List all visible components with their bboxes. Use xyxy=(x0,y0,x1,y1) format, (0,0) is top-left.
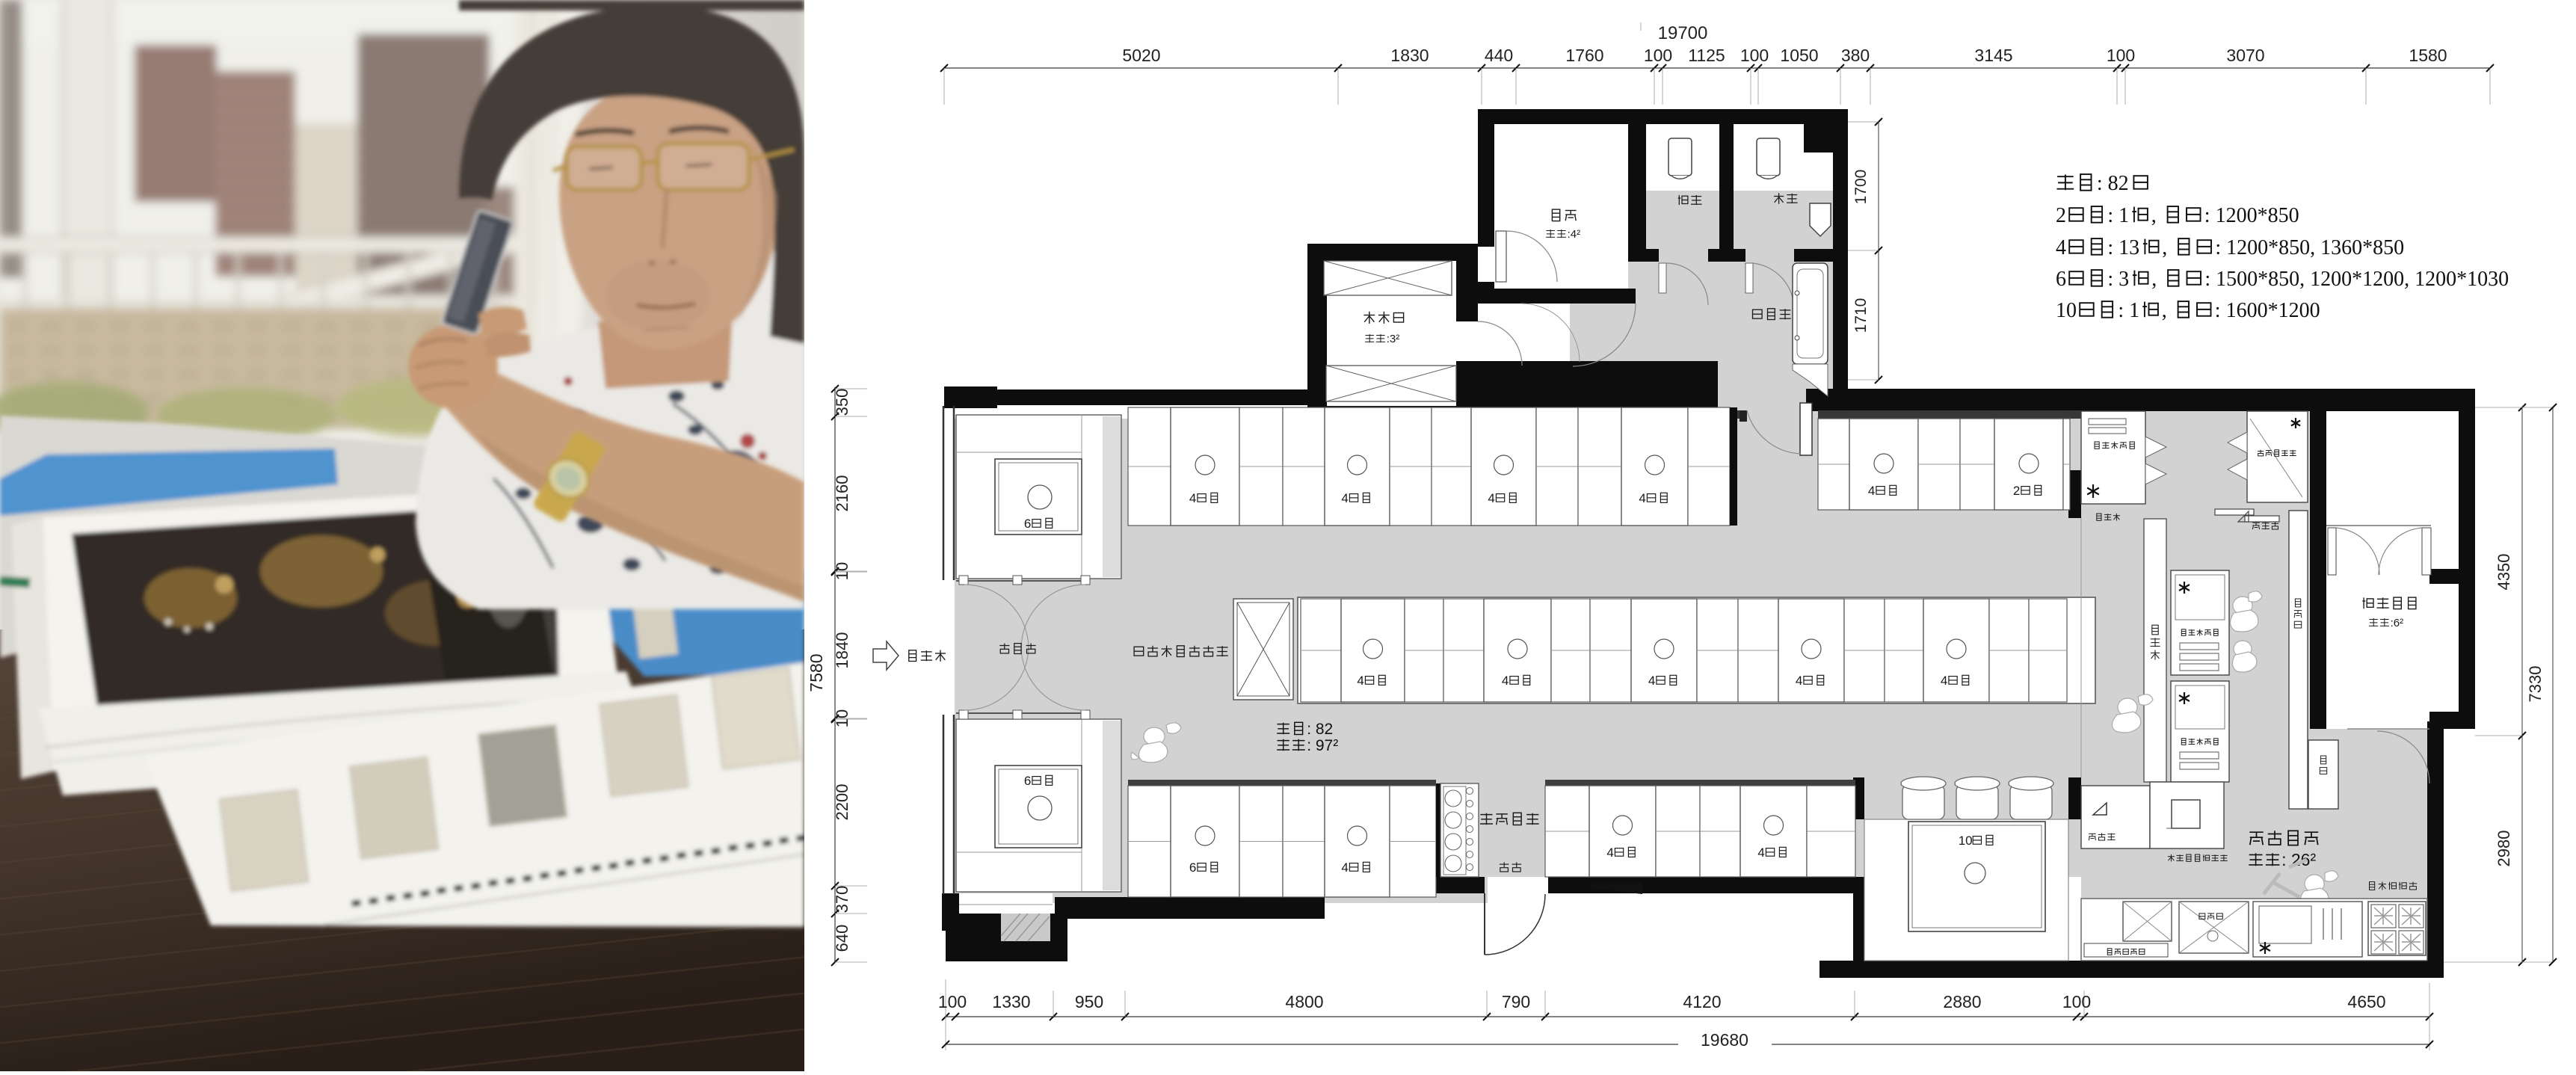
svg-text:2160: 2160 xyxy=(833,475,851,512)
svg-text:: 3: : 3 xyxy=(2107,268,2129,291)
svg-text:: 1: : 1 xyxy=(2118,299,2139,322)
svg-text:790: 790 xyxy=(1502,992,1530,1011)
svg-text:: 1: : 1 xyxy=(2107,204,2129,227)
svg-text:4: 4 xyxy=(1341,491,1348,505)
svg-text:2: 2 xyxy=(2056,204,2066,227)
svg-text:2880: 2880 xyxy=(1943,992,1981,1011)
svg-text:1830: 1830 xyxy=(1390,46,1429,65)
svg-text:4: 4 xyxy=(1796,674,1802,688)
svg-text:1580: 1580 xyxy=(2409,46,2447,65)
svg-text:7580: 7580 xyxy=(807,653,826,691)
svg-text:6: 6 xyxy=(1024,517,1031,531)
svg-text:19680: 19680 xyxy=(1701,1030,1748,1050)
svg-text:4: 4 xyxy=(2056,236,2066,259)
svg-text:350: 350 xyxy=(833,389,851,416)
svg-text::3²: :3² xyxy=(1387,333,1400,345)
svg-text:7330: 7330 xyxy=(2526,666,2545,703)
svg-text:10: 10 xyxy=(2056,299,2077,322)
svg-text:: 97²: : 97² xyxy=(1307,737,1338,754)
svg-text:4: 4 xyxy=(1941,674,1947,688)
svg-text:10: 10 xyxy=(833,562,851,580)
svg-text:6: 6 xyxy=(1189,860,1196,875)
svg-text::4²: :4² xyxy=(1568,228,1581,241)
svg-text:: 13: : 13 xyxy=(2107,236,2139,259)
svg-text:2200: 2200 xyxy=(833,784,851,821)
svg-text::6²: :6² xyxy=(2391,617,2404,629)
svg-text:4: 4 xyxy=(1639,491,1645,505)
svg-text:6: 6 xyxy=(2056,268,2066,291)
svg-text:: 82: : 82 xyxy=(1307,721,1333,738)
svg-text:,: , xyxy=(2151,268,2157,291)
svg-text:: 82: : 82 xyxy=(2097,172,2129,195)
svg-text:,: , xyxy=(2151,204,2157,227)
svg-text:380: 380 xyxy=(1841,46,1870,65)
svg-text:6: 6 xyxy=(1024,774,1031,788)
svg-text:4: 4 xyxy=(1189,491,1196,505)
svg-text:1760: 1760 xyxy=(1565,46,1603,65)
svg-text:4: 4 xyxy=(1357,674,1364,688)
svg-text:,: , xyxy=(2162,299,2167,322)
svg-text:4120: 4120 xyxy=(1683,992,1721,1011)
svg-text:1050: 1050 xyxy=(1780,46,1818,65)
svg-text:950: 950 xyxy=(1075,992,1103,1011)
svg-text:100: 100 xyxy=(938,992,967,1011)
svg-text:2: 2 xyxy=(2013,484,2020,498)
svg-text:100: 100 xyxy=(1740,46,1769,65)
svg-text:: 1200*850: : 1200*850 xyxy=(2204,204,2299,227)
svg-text:: 1200*850, 1360*850: : 1200*850, 1360*850 xyxy=(2215,236,2404,259)
svg-text:1125: 1125 xyxy=(1688,46,1725,65)
svg-text:3070: 3070 xyxy=(2226,46,2264,65)
svg-text:4800: 4800 xyxy=(1285,992,1323,1011)
svg-text:,: , xyxy=(2162,236,2167,259)
svg-text:4: 4 xyxy=(1606,845,1613,860)
svg-text:10: 10 xyxy=(833,709,851,727)
svg-text:2980: 2980 xyxy=(2495,831,2513,867)
svg-text:4: 4 xyxy=(1341,860,1348,875)
svg-text:19700: 19700 xyxy=(1658,23,1708,43)
svg-text:1710: 1710 xyxy=(1852,298,1870,333)
svg-text:4350: 4350 xyxy=(2495,554,2513,591)
svg-text:370: 370 xyxy=(833,886,851,914)
svg-text:1700: 1700 xyxy=(1852,170,1870,205)
svg-text:4: 4 xyxy=(1502,674,1509,688)
svg-text:1330: 1330 xyxy=(992,992,1030,1011)
svg-text:: 1600*1200: : 1600*1200 xyxy=(2215,299,2320,322)
svg-text:4650: 4650 xyxy=(2347,992,2385,1011)
svg-text:100: 100 xyxy=(1644,46,1672,65)
svg-text:3145: 3145 xyxy=(1974,46,2012,65)
svg-text:10: 10 xyxy=(1959,834,1973,848)
svg-text:100: 100 xyxy=(2107,46,2135,65)
svg-text:4: 4 xyxy=(1757,845,1764,860)
svg-text:: 26²: : 26² xyxy=(2281,850,2316,869)
svg-text:440: 440 xyxy=(1485,46,1513,65)
svg-text:100: 100 xyxy=(2062,992,2091,1011)
svg-text:4: 4 xyxy=(1648,674,1655,688)
svg-text:5020: 5020 xyxy=(1122,46,1160,65)
svg-text:1840: 1840 xyxy=(833,632,851,669)
svg-text:640: 640 xyxy=(833,925,851,952)
svg-text:4: 4 xyxy=(1488,491,1494,505)
svg-text:4: 4 xyxy=(1868,484,1875,498)
svg-text:: 1500*850, 1200*1200, 1200*10: : 1500*850, 1200*1200, 1200*1030 xyxy=(2204,268,2509,291)
